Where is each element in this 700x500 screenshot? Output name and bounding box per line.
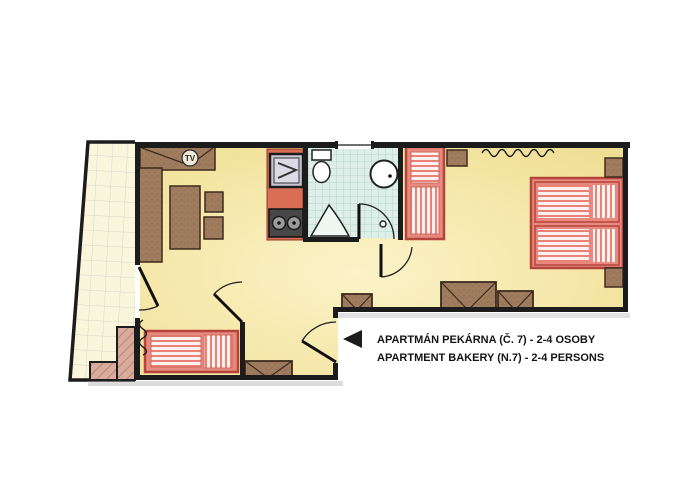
- wall-shadow-bedroom: [338, 313, 630, 318]
- caption-line1: APARTMÁN PEKÁRNA (Č. 7) - 2-4 OSOBY: [377, 333, 596, 346]
- kitchen-sink: [270, 154, 303, 187]
- nightstand: [447, 150, 467, 166]
- single-bed-1: [145, 331, 238, 372]
- round-basin: [371, 161, 398, 188]
- wardrobe: [441, 282, 496, 310]
- tv-label: TV: [185, 154, 196, 163]
- wall-shadow-bottom: [88, 381, 343, 386]
- single-bed-2: [406, 147, 444, 239]
- floor-plan-page: TV: [0, 0, 700, 500]
- kitchen-unit: [267, 149, 303, 240]
- chair: [205, 192, 223, 212]
- stove: [269, 209, 303, 237]
- entrance-arrow-icon: [343, 330, 362, 348]
- nightstand: [605, 268, 623, 287]
- toilet: [312, 150, 331, 183]
- floor-plan: TV: [0, 0, 700, 500]
- caption-line2: APARTMENT BAKERY (N.7) - 2-4 PERSONS: [377, 352, 604, 364]
- terrace: [70, 142, 135, 380]
- nightstand: [605, 158, 623, 177]
- bathroom: [305, 148, 400, 239]
- bathroom-window: [335, 141, 374, 149]
- chair: [204, 217, 223, 239]
- double-bed: [531, 178, 623, 268]
- tv-cabinet: TV: [140, 147, 215, 170]
- caption: APARTMÁN PEKÁRNA (Č. 7) - 2-4 OSOBY APAR…: [343, 330, 604, 364]
- door-knob: [380, 221, 386, 227]
- sofa: [139, 168, 162, 262]
- table: [170, 186, 200, 249]
